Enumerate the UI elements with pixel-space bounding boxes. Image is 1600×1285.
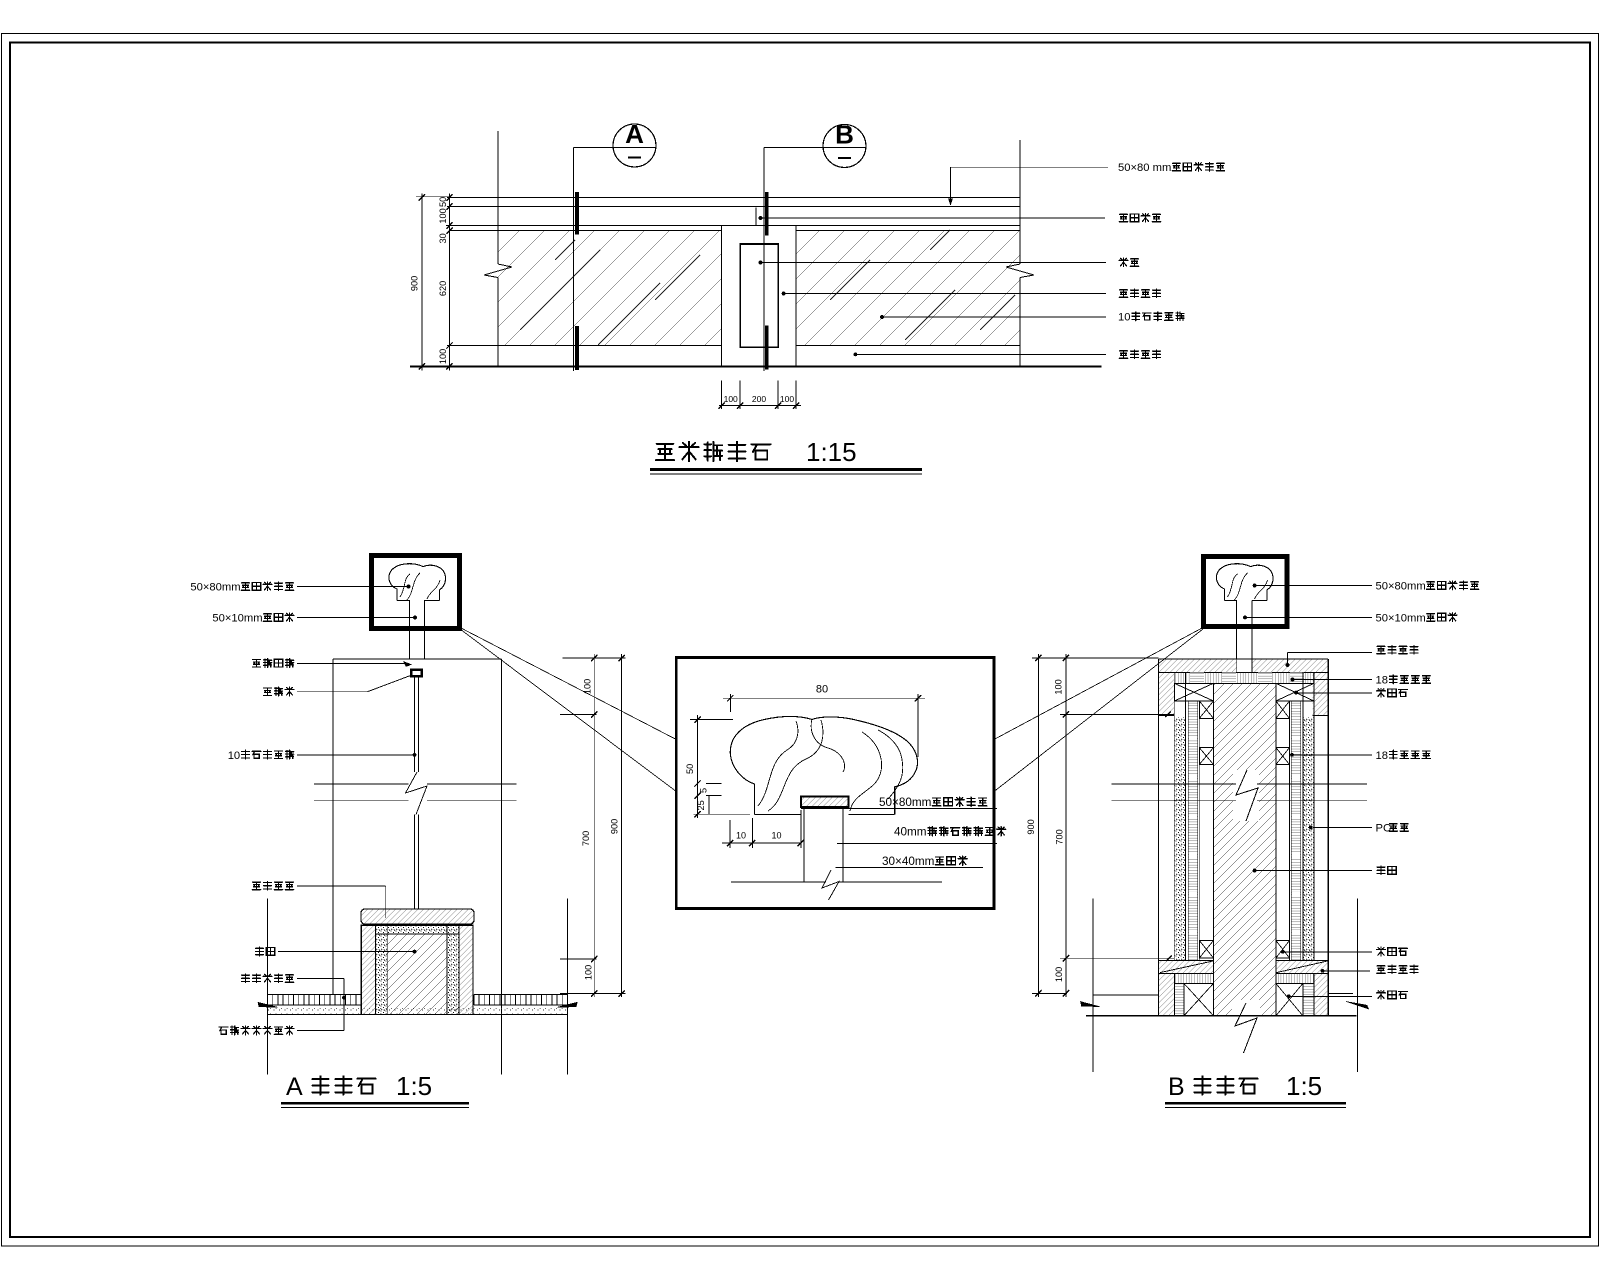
- svg-text:100: 100: [1054, 967, 1064, 982]
- svg-text:100: 100: [438, 349, 448, 364]
- svg-text:1:15: 1:15: [806, 437, 857, 467]
- svg-text:50×80mm: 50×80mm: [1376, 581, 1426, 593]
- svg-text:PC: PC: [1376, 822, 1392, 834]
- svg-text:30×40mm: 30×40mm: [882, 855, 934, 868]
- svg-text:100: 100: [438, 208, 448, 223]
- svg-text:900: 900: [1026, 819, 1036, 834]
- svg-text:700: 700: [1055, 829, 1065, 844]
- svg-text:A: A: [286, 1073, 303, 1101]
- svg-text:50: 50: [438, 197, 448, 207]
- svg-text:80: 80: [816, 684, 828, 696]
- svg-text:700: 700: [581, 831, 591, 846]
- svg-text:100: 100: [1054, 679, 1064, 694]
- svg-text:10: 10: [736, 831, 746, 841]
- svg-text:100: 100: [724, 394, 738, 404]
- svg-text:50×80mm: 50×80mm: [190, 582, 240, 594]
- svg-text:A: A: [625, 119, 644, 149]
- svg-text:50×80mm: 50×80mm: [879, 796, 931, 809]
- svg-text:900: 900: [610, 819, 620, 834]
- svg-text:50×80 mm: 50×80 mm: [1118, 162, 1171, 174]
- svg-text:100: 100: [584, 965, 594, 980]
- svg-text:200: 200: [752, 394, 766, 404]
- svg-text:900: 900: [410, 276, 420, 291]
- svg-text:1:5: 1:5: [1286, 1071, 1322, 1101]
- svg-text:30: 30: [438, 233, 448, 243]
- svg-text:40mm: 40mm: [894, 826, 927, 839]
- svg-text:5: 5: [699, 788, 709, 793]
- svg-text:50×10mm: 50×10mm: [1376, 612, 1426, 624]
- svg-text:B: B: [1168, 1073, 1185, 1101]
- svg-text:10: 10: [771, 831, 781, 841]
- svg-text:25: 25: [696, 800, 706, 810]
- svg-text:18: 18: [1376, 675, 1388, 687]
- svg-text:10: 10: [228, 750, 240, 762]
- svg-text:18: 18: [1376, 750, 1388, 762]
- svg-text:620: 620: [438, 281, 448, 296]
- svg-text:100: 100: [780, 394, 794, 404]
- svg-text:10: 10: [1118, 312, 1130, 324]
- svg-text:1:5: 1:5: [396, 1071, 432, 1101]
- svg-text:50: 50: [685, 764, 695, 774]
- svg-text:50×10mm: 50×10mm: [212, 613, 262, 625]
- svg-text:B: B: [835, 120, 854, 150]
